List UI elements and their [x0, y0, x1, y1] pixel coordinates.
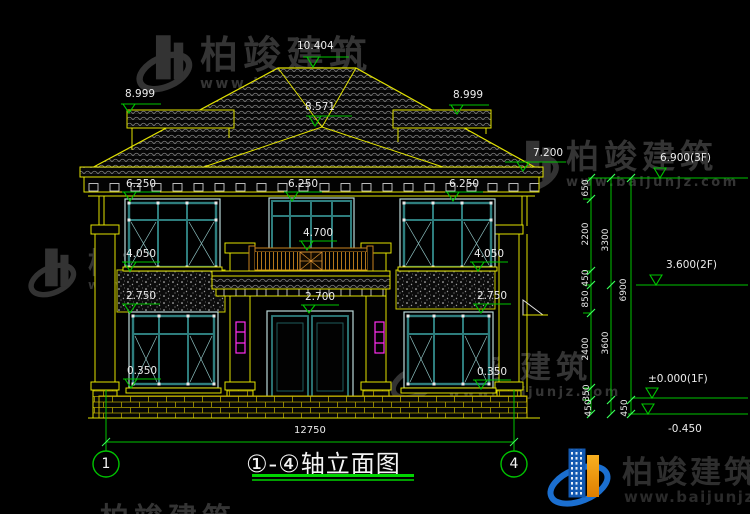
- level-floor1: ±0.000(1F): [648, 374, 708, 385]
- level-cornice-right: 6.250: [449, 179, 479, 190]
- dim-450b: 450: [584, 399, 594, 416]
- dim-6900: 6900: [619, 279, 629, 302]
- dim-3300: 3300: [601, 229, 611, 252]
- level-sill2-right: 4.050: [474, 249, 504, 260]
- pilaster-far-left: [91, 225, 119, 418]
- dim-2400: 2400: [581, 338, 591, 361]
- level-cornice-center: 6.250: [288, 179, 318, 190]
- level-cornice-left: 6.250: [126, 179, 156, 190]
- dim-450c: 450: [620, 399, 630, 416]
- dim-450a: 450: [581, 269, 591, 286]
- footer-site-text: www.baijunjz.com: [624, 488, 750, 506]
- dim-3600: 3600: [601, 332, 611, 355]
- level-porch: 2.700: [305, 292, 335, 303]
- level-ground: -0.450: [668, 424, 702, 435]
- watermark-logo-left: [27, 249, 78, 301]
- level-win1-top-right: 2.750: [477, 291, 507, 302]
- window-2f-right: [400, 199, 495, 271]
- level-side-roof-left: 8.999: [125, 89, 155, 100]
- brick-base: [99, 396, 527, 418]
- level-eave-top: 7.200: [533, 148, 563, 159]
- window-2f-left: [125, 199, 220, 271]
- dim-650: 650: [581, 179, 591, 196]
- sill-2f-right: [398, 267, 497, 271]
- cad-canvas: 柏竣建筑 www.baijunjz.com 柏竣建筑 www.baijunjz.…: [0, 0, 750, 514]
- level-win1-bottom-right: 0.350: [477, 367, 507, 378]
- sill-1f-left: [126, 388, 221, 393]
- level-balcony: 4.700: [303, 228, 333, 239]
- footer-brand-text: 柏竣建筑: [622, 447, 750, 492]
- dim-850: 850: [581, 290, 591, 307]
- entry-door: [267, 311, 353, 398]
- porch-roof: [212, 271, 390, 296]
- axis-bubble-4: 4: [501, 456, 527, 472]
- footer-logo-icon: [543, 441, 623, 511]
- sill-2f-left: [123, 267, 222, 271]
- axis-bubble-1: 1: [93, 456, 119, 472]
- level-side-roof-right: 8.999: [453, 90, 483, 101]
- level-ridge: 10.404: [297, 41, 334, 52]
- dim-2200: 2200: [581, 223, 591, 246]
- level-sill2-left: 4.050: [126, 249, 156, 260]
- level-floor2: 3.600(2F): [666, 260, 717, 271]
- level-win1-top-left: 2.750: [126, 291, 156, 302]
- french-window-balcony: [269, 198, 354, 253]
- title-underline-2: [252, 479, 414, 481]
- level-hip-front: 8.571: [305, 102, 335, 113]
- elevation-linework: [0, 0, 750, 514]
- level-win1-bottom-left: 0.350: [127, 366, 157, 377]
- dim-total-width: 12750: [294, 425, 326, 436]
- watermark-logo-top: [134, 35, 194, 96]
- level-floor3: 6.900(3F): [660, 153, 711, 164]
- title-underline: [252, 474, 414, 477]
